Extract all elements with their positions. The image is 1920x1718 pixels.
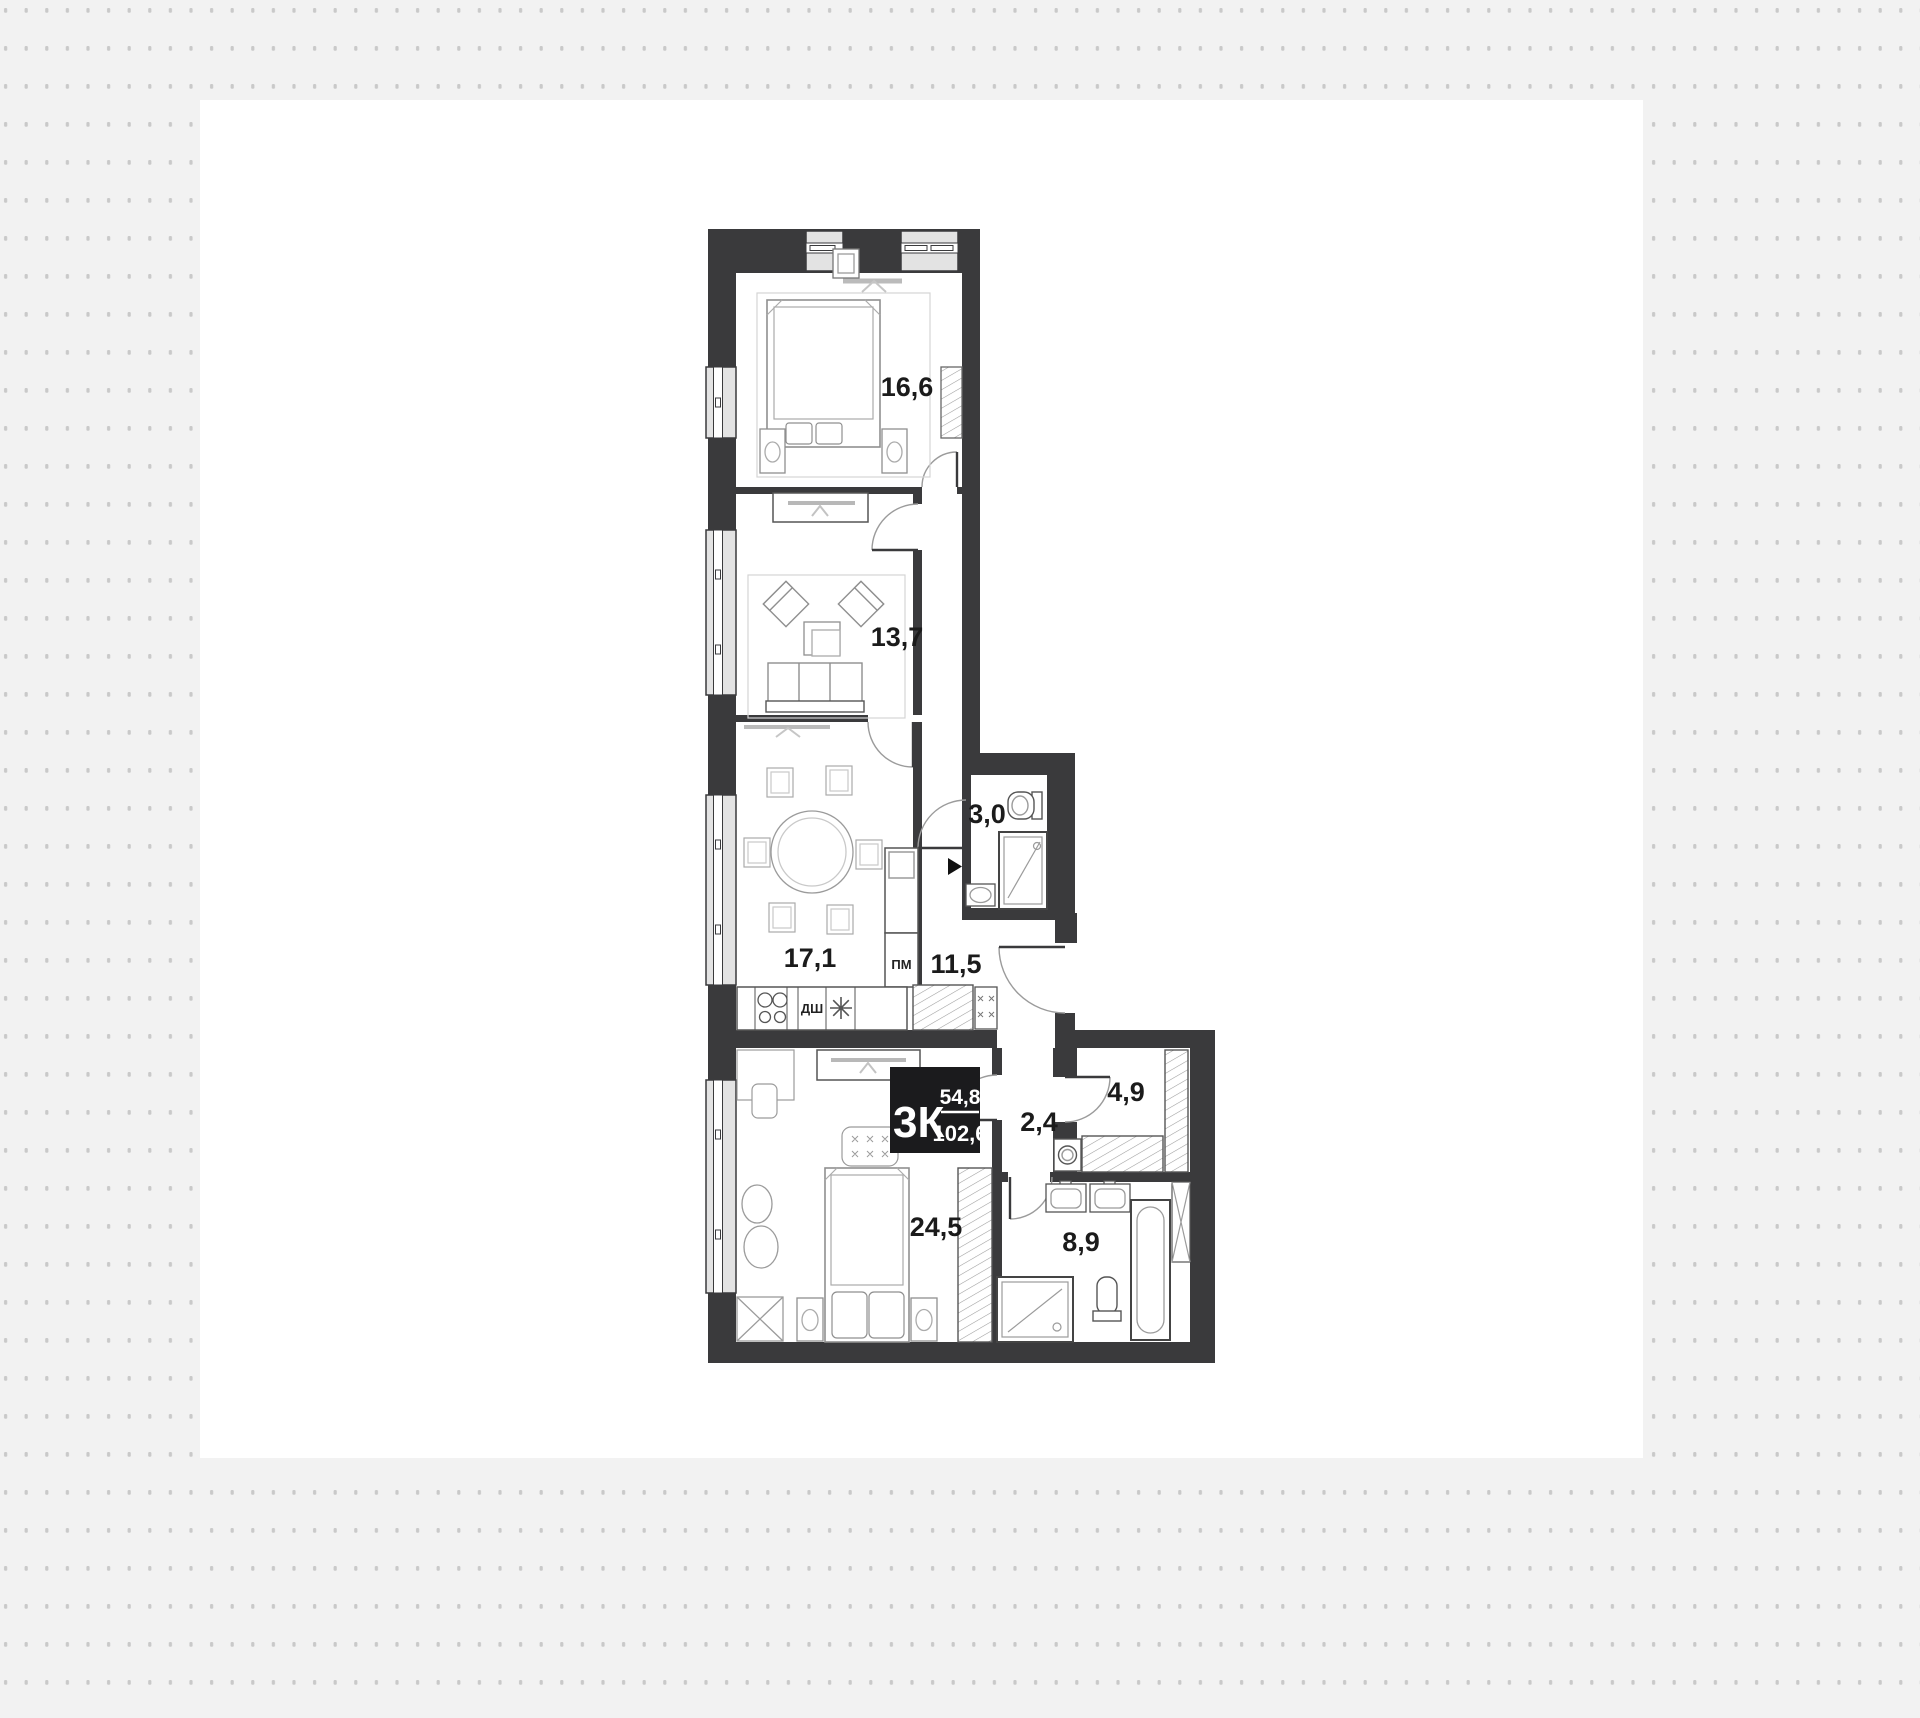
area-label-bedroom-small: 16,6 (881, 372, 934, 402)
hall-wardrobe-icon (913, 985, 973, 1030)
oven-label: ДШ (801, 1001, 823, 1016)
bed-icon (825, 1168, 909, 1342)
shower-icon (999, 832, 1047, 909)
room-inner-hall: 2,4 (1020, 1107, 1058, 1137)
nightstand-icon (797, 1298, 823, 1341)
area-label-hallway: 11,5 (930, 949, 981, 979)
washbasin-icon (1090, 1181, 1130, 1212)
wardrobe-icon (1165, 1050, 1188, 1172)
bathtub-icon (1131, 1200, 1170, 1340)
window-icon (706, 367, 736, 438)
nightstand-icon (760, 429, 785, 473)
area-label-wardrobe: 4,9 (1107, 1077, 1145, 1107)
shoe-bench-icon (975, 987, 997, 1029)
window-icon (706, 1080, 736, 1293)
chair-icon (737, 1297, 783, 1341)
floorplan-drawing: 16,6 13,7 (0, 0, 1920, 1718)
toilet-icon (1093, 1277, 1121, 1321)
floorplan-page: 16,6 13,7 (0, 0, 1920, 1718)
living-area-value: 54,8 (940, 1086, 981, 1109)
kitchen-sink-icon (830, 997, 852, 1019)
nightstand-icon (882, 429, 907, 473)
area-label-wc: 3,0 (968, 799, 1006, 829)
closet-icon (773, 493, 868, 522)
shaft-icon (1172, 1182, 1190, 1262)
area-label-inner-hall: 2,4 (1020, 1107, 1058, 1137)
bed-icon (767, 300, 880, 447)
dresser-icon (833, 249, 859, 278)
dishwasher-label: ПМ (891, 957, 911, 972)
wardrobe-shelf-icon (1082, 1136, 1163, 1172)
sofa-icon (766, 663, 864, 712)
toilet-icon (1008, 792, 1042, 819)
window-icon (706, 530, 736, 695)
bench-icon (842, 1127, 898, 1166)
area-label-living: 13,7 (871, 622, 924, 652)
kitchen-counter-icon: ДШ (737, 987, 907, 1030)
wardrobe-icon (941, 367, 962, 438)
washbasin-icon (1046, 1181, 1086, 1212)
dishwasher-cabinet-icon: ПМ (885, 933, 918, 987)
area-label-bedroom-master: 24,5 (910, 1212, 963, 1242)
nightstand-icon (911, 1298, 937, 1341)
fridge-icon (885, 848, 918, 933)
window-icon (706, 795, 736, 985)
apartment-tag: 3К 54,8 102,6 (890, 1067, 988, 1153)
shower-tray-icon (997, 1277, 1073, 1342)
dining-table-icon (771, 811, 853, 893)
washbasin-icon (966, 884, 995, 906)
total-area-value: 102,6 (932, 1121, 987, 1146)
area-label-bathroom: 8,9 (1062, 1227, 1100, 1257)
area-label-kitchen: 17,1 (784, 943, 837, 973)
wardrobe-icon (958, 1168, 992, 1342)
window-icon (901, 231, 958, 271)
washing-machine-icon (1054, 1139, 1081, 1171)
coffee-table-icon (804, 622, 840, 656)
